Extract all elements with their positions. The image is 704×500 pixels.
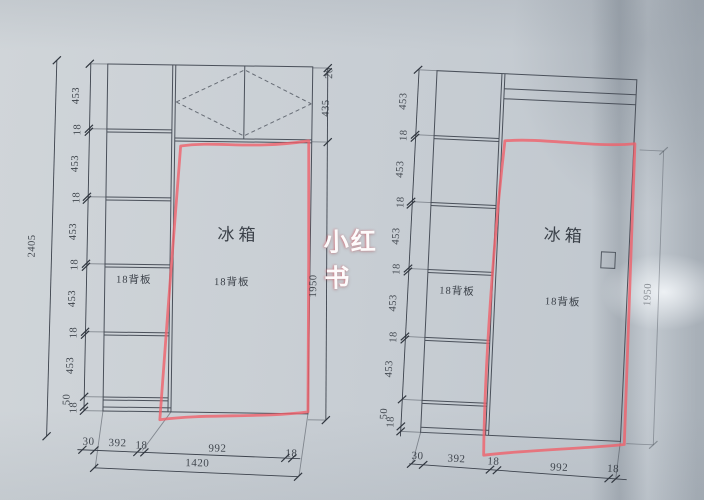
right-bottom-dim: 30	[411, 450, 424, 463]
left-fridge-label: 冰箱	[217, 220, 259, 246]
right-elevation-drawing: 453 18 453 18 453 18 453 18 453 50 18 19…	[368, 35, 689, 500]
xiaohongshu-watermark: 小红书	[323, 221, 404, 294]
right-height-chain-dim: 18	[398, 129, 410, 141]
left-bottom-dim: 992	[208, 442, 226, 454]
left-height-chain-dim: 18	[72, 124, 83, 136]
left-height-chain-dim: 453	[71, 87, 82, 104]
right-fridge-height-dim: 1950	[642, 283, 654, 306]
left-bottom-dim: 392	[108, 437, 126, 449]
left-height-chain-dim: 18	[68, 402, 79, 414]
photographed-cabinet-drawing: 2405 453 18 453 18 453 18 453 18 453 50 …	[0, 0, 704, 500]
left-bottom-total-dim: 1420	[185, 457, 209, 469]
right-bottom-dim: 18	[607, 463, 620, 476]
right-height-chain-dim: 453	[388, 294, 400, 312]
left-height-chain-dim: 18	[68, 327, 79, 339]
right-bottom-dim: 392	[447, 453, 466, 466]
left-height-chain-dim: 453	[68, 223, 79, 240]
left-fridge-height-dim: 1950	[308, 274, 319, 297]
left-height-chain-dim: 18	[69, 259, 80, 271]
left-overall-height-dim: 2405	[27, 234, 38, 257]
left-bottom-dim: 30	[82, 436, 94, 448]
right-fridge-label: 冰箱	[543, 220, 586, 247]
left-height-chain-dim: 18	[71, 192, 82, 204]
left-back-panel-label: 18背板	[214, 274, 250, 289]
left-height-chain-dim: 453	[67, 290, 78, 307]
right-height-chain-dim: 18	[388, 331, 400, 343]
right-cabinet-lines-svg	[368, 35, 689, 500]
left-top-gap-dim: 20	[324, 67, 335, 79]
right-height-chain-dim: 18	[395, 196, 407, 208]
left-top-section-dim: 435	[321, 99, 332, 116]
left-height-chain-dim: 453	[70, 155, 81, 172]
left-column-panel-label: 18背板	[116, 272, 152, 287]
right-height-chain-dim: 453	[398, 92, 410, 110]
left-bottom-dim: 18	[135, 439, 147, 451]
right-height-chain-dim: 453	[384, 360, 396, 378]
small-square-marker	[600, 251, 616, 269]
left-height-chain-dim: 453	[65, 357, 76, 374]
right-back-panel-label: 18背板	[545, 293, 581, 310]
left-cabinet-lines-svg	[7, 38, 348, 493]
right-height-chain-dim: 18	[385, 416, 397, 428]
right-bottom-dim: 18	[487, 455, 500, 468]
left-elevation-drawing: 2405 453 18 453 18 453 18 453 18 453 50 …	[7, 38, 348, 493]
right-height-chain-dim: 453	[395, 160, 407, 178]
right-column-panel-label: 18背板	[439, 283, 475, 300]
right-bottom-dim: 992	[550, 461, 569, 474]
left-bottom-dim: 18	[285, 448, 297, 460]
